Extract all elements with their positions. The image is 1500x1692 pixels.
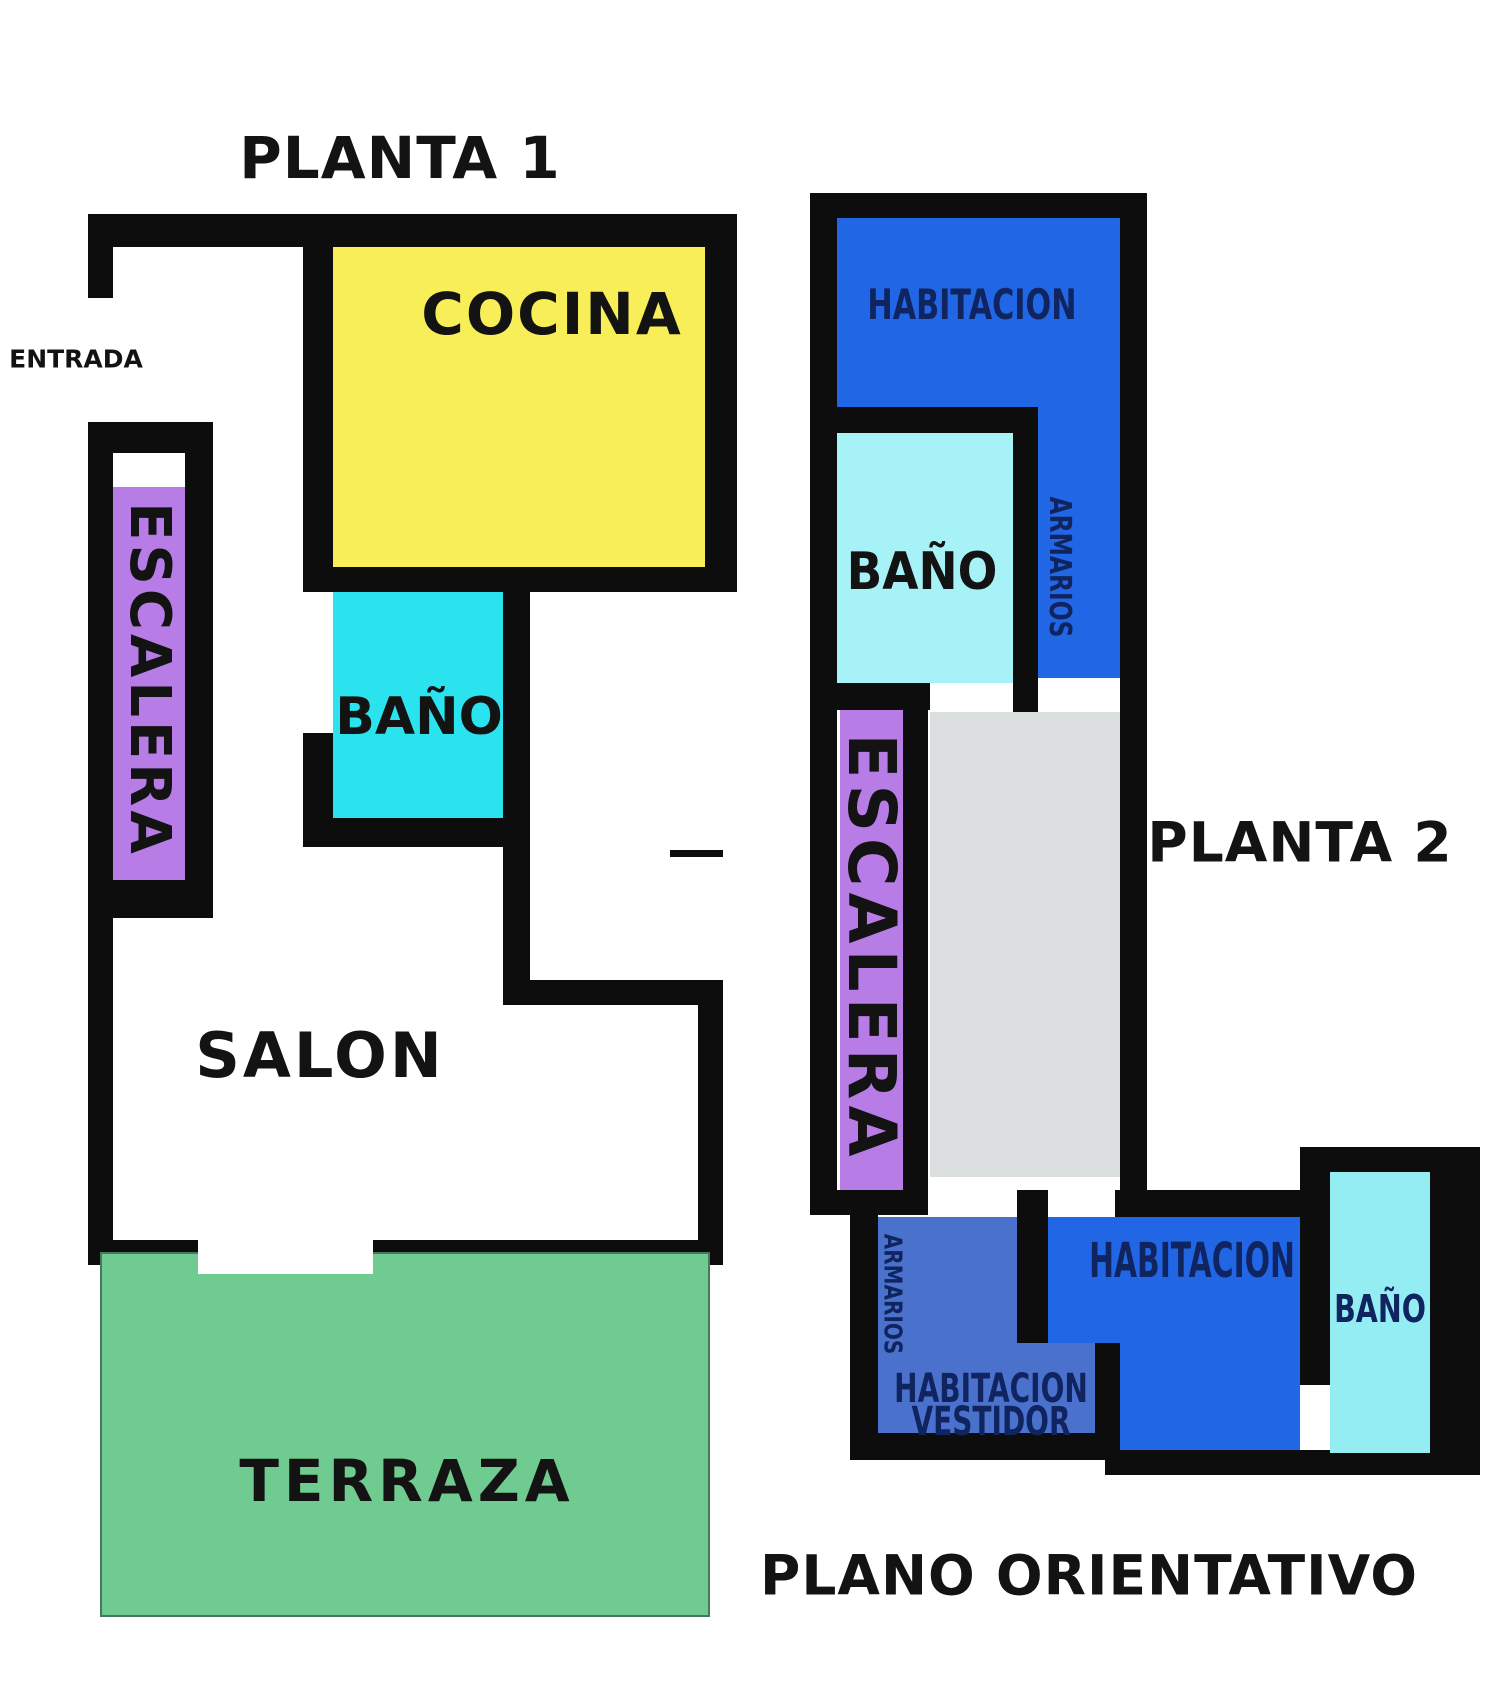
wall (1013, 407, 1038, 712)
wall (1300, 1450, 1480, 1475)
label-escalera-planta2: ESCALERA (838, 733, 904, 1162)
wall (1430, 1147, 1480, 1475)
wall (303, 567, 737, 592)
label-bano-planta1: BAÑO (335, 691, 503, 743)
label-cocina: COCINA (421, 285, 682, 343)
wall (88, 880, 213, 918)
label-bano-planta2-top: BAÑO (847, 546, 998, 598)
hall-gray (930, 712, 1120, 1177)
wall (303, 214, 333, 592)
label-vestidor-line2: VESTIDOR (911, 1402, 1070, 1442)
label-armarios-bottom: ARMARIOS (881, 1234, 906, 1355)
footer-title: PLANO ORIENTATIVO (760, 1549, 1418, 1604)
wall (307, 818, 530, 847)
label-salon: SALON (195, 1025, 445, 1087)
wall (88, 214, 113, 298)
label-entrada: ENTRADA (9, 347, 143, 372)
room-habitacion-bottom (1120, 1343, 1300, 1450)
wall (1105, 1450, 1300, 1475)
label-habitacion-top: HABITACION (867, 284, 1076, 326)
wall (810, 1190, 928, 1215)
wall (1300, 1147, 1330, 1385)
label-armarios-top: ARMARIOS (1044, 497, 1074, 638)
label-escalera-planta1: ESCALERA (121, 502, 177, 857)
floor2-title: PLANTA 2 (1147, 816, 1452, 871)
wall (1095, 1343, 1120, 1460)
label-habitacion-bottom: HABITACION (1089, 1237, 1295, 1285)
wall (705, 214, 737, 592)
window-sill (670, 850, 723, 857)
wall (698, 1005, 723, 1265)
label-terraza: TERRAZA (239, 1452, 574, 1510)
wall (88, 422, 113, 1265)
wall (503, 592, 530, 1005)
label-bano-planta2-bottom: BAÑO (1334, 1290, 1426, 1328)
wall (185, 422, 213, 918)
wall (88, 214, 737, 247)
room-terraza (100, 1252, 710, 1617)
wall (810, 193, 1147, 218)
wall (837, 407, 1037, 433)
wall (1120, 193, 1147, 1218)
wall (1115, 1190, 1300, 1217)
floor1-title: PLANTA 1 (239, 129, 560, 187)
wall (505, 980, 723, 1005)
floor-plan: PLANTA 1 ENTRADA COCINA BAÑO ESCALERA SA… (0, 0, 1500, 1692)
wall (850, 1215, 878, 1460)
terraza-door-opening (198, 1250, 373, 1274)
